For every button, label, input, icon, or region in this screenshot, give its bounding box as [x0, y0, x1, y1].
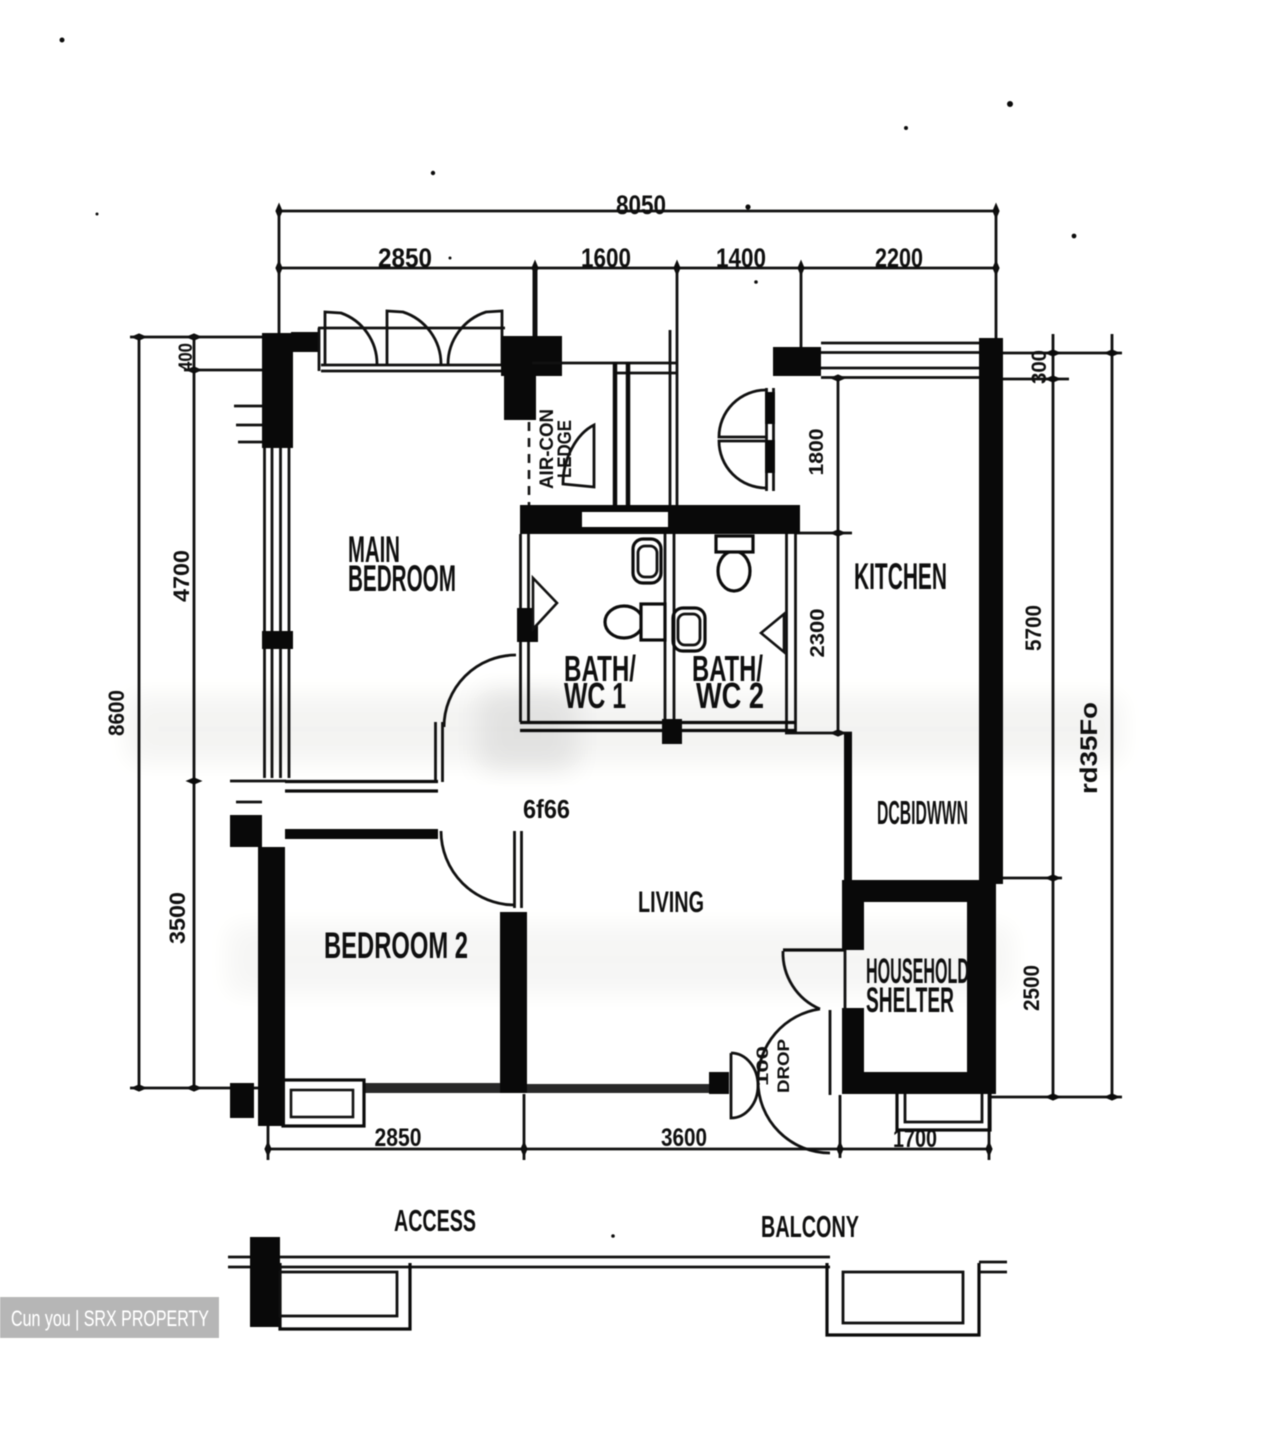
svg-text:BEDROOM 2: BEDROOM 2: [324, 925, 468, 966]
svg-text:300: 300: [1028, 350, 1051, 384]
svg-text:KITCHEN: KITCHEN: [854, 556, 947, 597]
svg-text:BEDROOM: BEDROOM: [348, 558, 456, 599]
svg-text:2200: 2200: [875, 243, 923, 273]
svg-text:1800: 1800: [806, 429, 828, 476]
svg-text:1600: 1600: [581, 243, 631, 273]
svg-text:8600: 8600: [104, 690, 129, 736]
svg-text:3600: 3600: [661, 1124, 707, 1152]
svg-text:2500: 2500: [1019, 965, 1044, 1011]
svg-text:Cun you | SRX PROPERTY: Cun you | SRX PROPERTY: [11, 1306, 209, 1331]
svg-text:6f66: 6f66: [523, 794, 570, 824]
svg-text:SHELTER: SHELTER: [866, 981, 954, 1020]
svg-text:3500: 3500: [165, 892, 190, 944]
svg-text:2850: 2850: [378, 243, 432, 273]
svg-text:5700: 5700: [1021, 605, 1046, 651]
svg-text:LIVING: LIVING: [638, 886, 704, 919]
svg-text:400: 400: [176, 343, 197, 371]
svg-text:rd35Fo: rd35Fo: [1076, 702, 1103, 794]
svg-text:100: 100: [753, 1046, 772, 1086]
svg-text:2850: 2850: [375, 1124, 422, 1152]
svg-text:4700: 4700: [169, 550, 194, 602]
svg-text:WC 1: WC 1: [564, 675, 626, 716]
svg-text:2300: 2300: [807, 609, 829, 658]
svg-text:WC 2: WC 2: [696, 675, 764, 716]
svg-text:BALCONY: BALCONY: [761, 1209, 859, 1244]
svg-text:ACCESS: ACCESS: [394, 1203, 476, 1238]
svg-text:DCBIDWWN: DCBIDWWN: [877, 794, 968, 831]
svg-text:DROP: DROP: [774, 1039, 793, 1093]
svg-text:8050: 8050: [616, 190, 666, 220]
svg-text:1400: 1400: [716, 243, 766, 273]
